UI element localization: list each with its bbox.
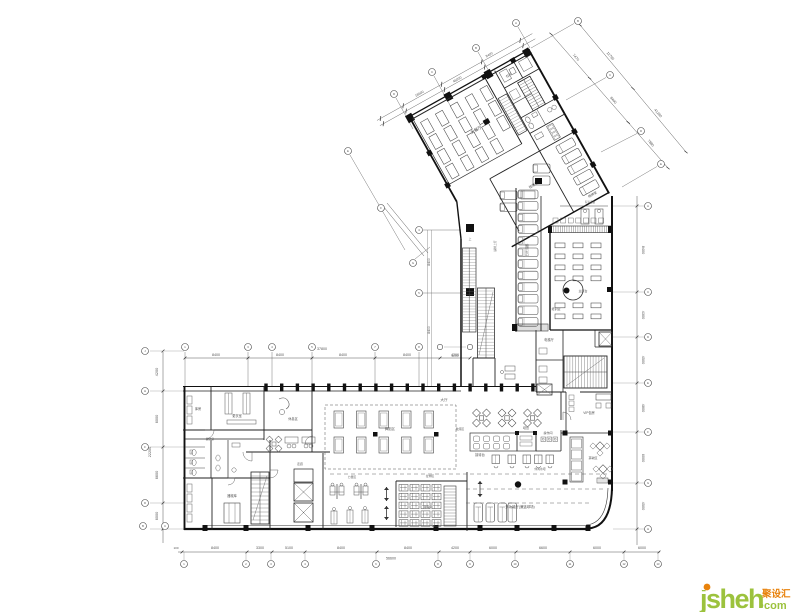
svg-text:力量区: 力量区 [348,475,357,479]
svg-text:8400: 8400 [427,258,431,266]
svg-text:器械库: 器械库 [227,493,237,498]
svg-text:茶歇区: 茶歇区 [588,455,597,460]
svg-text:B: B [577,19,579,23]
svg-text:8400: 8400 [211,546,219,550]
svg-text:6000: 6000 [155,512,159,520]
svg-text:D: D [144,501,146,505]
svg-text:多功能厅(兼篮球场): 多功能厅(兼篮球场) [505,504,534,509]
svg-text:单车房: 单车房 [424,505,433,509]
svg-text:B: B [142,524,144,528]
svg-text:D: D [647,335,649,339]
svg-text:培训室: 培训室 [551,306,560,311]
svg-text:6600: 6600 [155,471,159,479]
svg-text:C: C [609,73,611,77]
svg-text:C: C [164,524,166,528]
svg-text:电梯厅: 电梯厅 [544,337,554,342]
svg-text:库房: 库房 [195,406,201,411]
svg-text:操作间: 操作间 [543,430,552,435]
svg-text:C: C [647,290,649,294]
svg-text:上: 上 [469,237,472,241]
svg-text:4800: 4800 [641,404,645,412]
svg-text:8400: 8400 [212,353,220,357]
svg-text:100: 100 [173,546,178,550]
svg-text:8400: 8400 [276,353,284,357]
svg-text:56600: 56600 [386,557,396,561]
svg-text:接待台: 接待台 [475,452,485,457]
svg-text:22200: 22200 [148,447,152,458]
svg-text:更衣室: 更衣室 [232,413,242,418]
svg-text:6000: 6000 [155,415,159,423]
svg-text:B: B [475,46,477,50]
svg-text:8400: 8400 [337,546,345,550]
svg-text:拉伸区: 拉伸区 [426,474,435,478]
svg-text:E: E [347,149,349,153]
svg-text:8400: 8400 [403,353,411,357]
svg-text:日光浴廊: 日光浴廊 [524,243,529,257]
svg-text:主席台: 主席台 [578,288,587,293]
svg-text:大厅: 大厅 [440,397,448,402]
svg-text:4500: 4500 [641,356,645,364]
svg-text:VIP包房: VIP包房 [583,410,595,415]
svg-text:有氧设备: 有氧设备 [585,200,596,204]
svg-text:舞蹈区: 舞蹈区 [385,426,396,431]
svg-text:E: E [660,162,662,166]
svg-text:G: G [647,481,649,485]
svg-text:聚设汇: 聚设汇 [761,588,791,600]
svg-text:走廊: 走廊 [297,461,303,466]
svg-text:4200: 4200 [451,546,459,550]
svg-text:4300: 4300 [641,311,645,319]
svg-text:6000: 6000 [489,546,497,550]
svg-text:6600: 6600 [539,546,547,550]
svg-text:4200: 4200 [155,368,159,376]
svg-text:3300: 3300 [256,546,264,550]
svg-text:D: D [640,129,642,133]
svg-text:G: G [412,261,414,265]
svg-text:com: com [764,600,787,612]
svg-text:A: A [515,21,517,25]
svg-text:6000: 6000 [593,546,601,550]
svg-text:E: E [647,381,649,385]
svg-text:5100: 5100 [285,546,293,550]
svg-text:4500: 4500 [641,502,645,510]
svg-text:8400: 8400 [641,246,645,254]
svg-text:A: A [647,204,649,208]
svg-text:吧台: 吧台 [523,425,529,430]
svg-text:D: D [393,92,395,96]
svg-text:H: H [144,389,146,393]
svg-text:休息区: 休息区 [288,416,298,421]
svg-text:6000: 6000 [641,454,645,462]
svg-text:6000: 6000 [638,546,646,550]
svg-text:散座区: 散座区 [456,427,465,431]
svg-text:休闲水吧: 休闲水吧 [534,467,545,471]
svg-text:8400: 8400 [427,326,431,334]
svg-text:盥洗室: 盥洗室 [206,437,215,441]
svg-text:37800: 37800 [317,347,327,351]
svg-text:8400: 8400 [339,353,347,357]
svg-text:H: H [647,527,649,531]
svg-text:扶梯上行: 扶梯上行 [493,240,497,251]
svg-text:4200: 4200 [451,354,458,358]
svg-text:C: C [431,70,433,74]
svg-text:8400: 8400 [404,546,412,550]
